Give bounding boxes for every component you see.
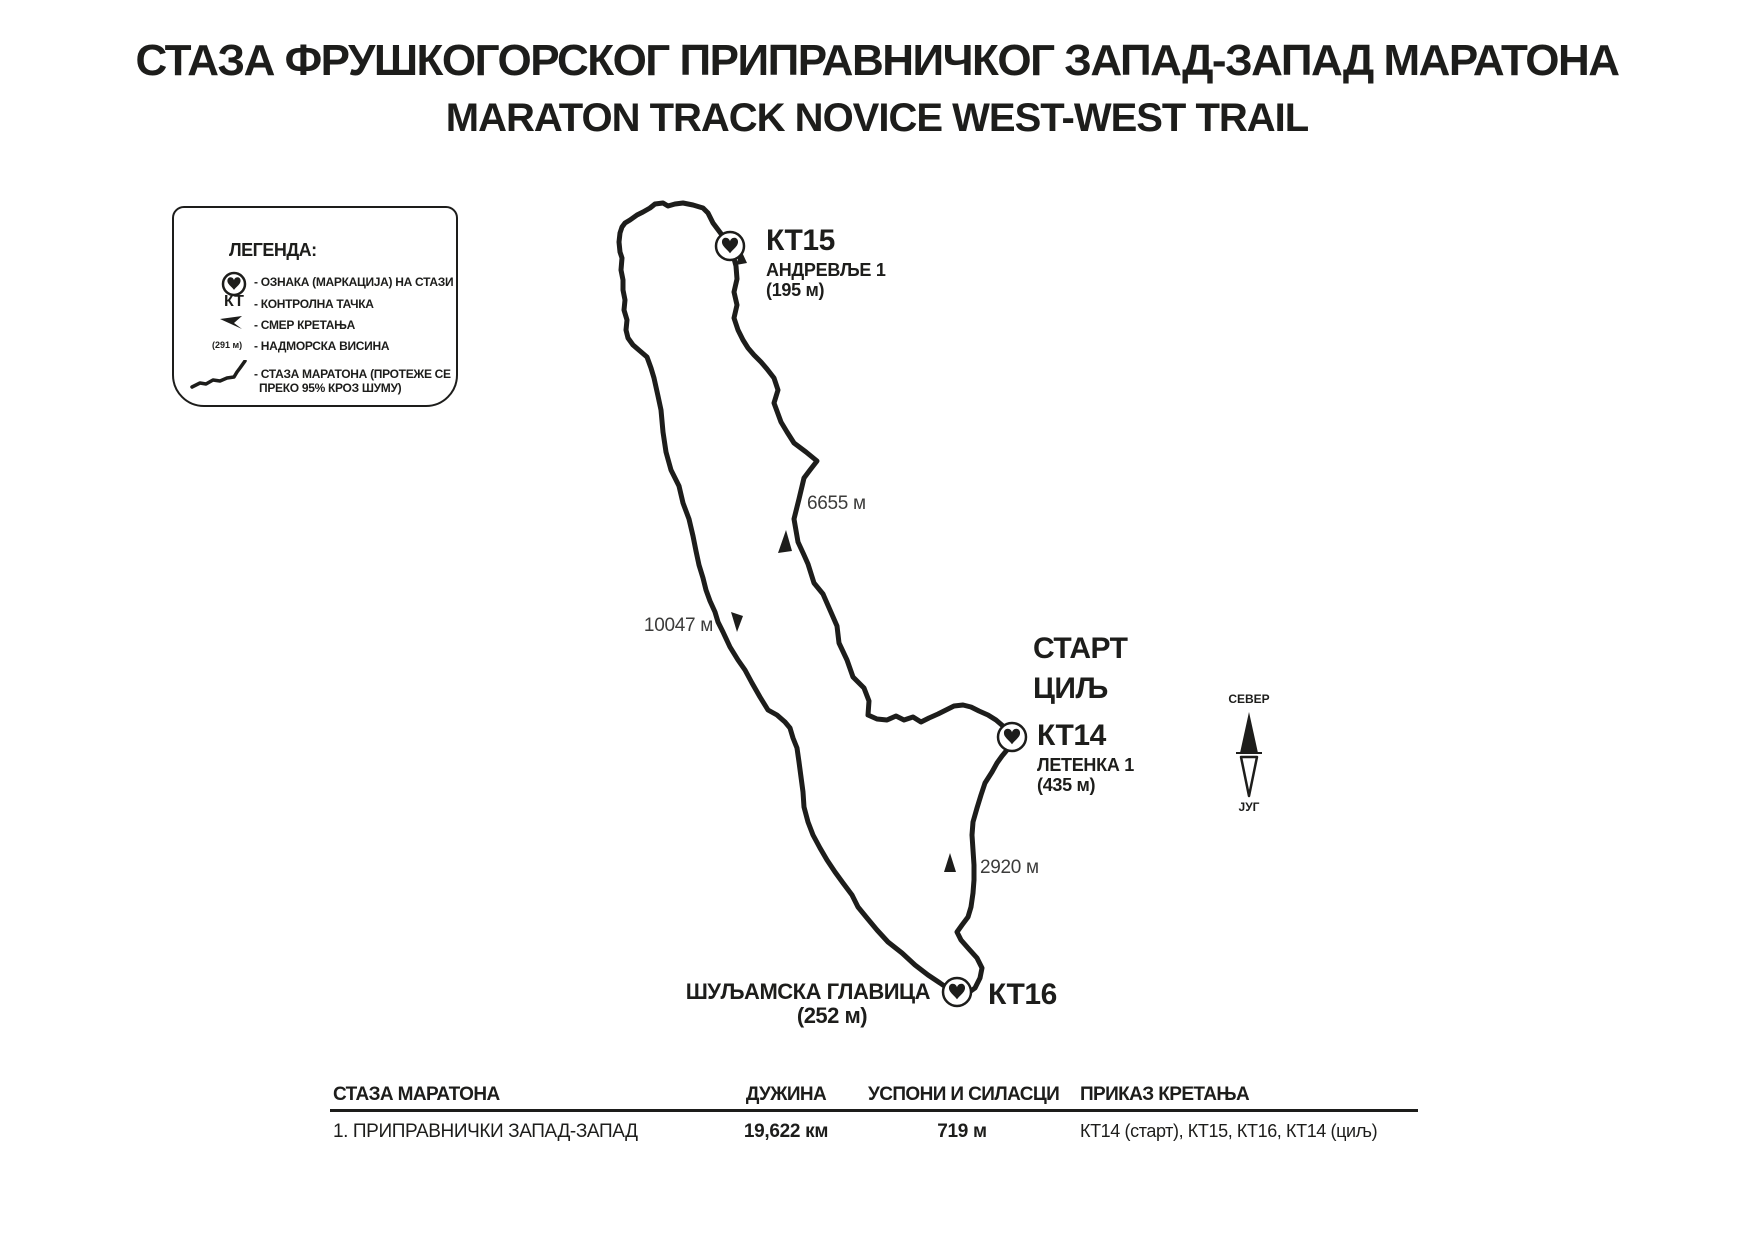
kt15-elevation-label: (195 м) bbox=[766, 280, 824, 301]
kt14-label: КТ14 bbox=[1037, 719, 1106, 753]
legend-heading: ЛЕГЕНДА: bbox=[229, 240, 317, 261]
table-row-ascents: 719 м bbox=[868, 1121, 1056, 1143]
page-title-cyrillic: СТАЗА ФРУШКОГОРСКОГ ПРИПРАВНИЧКОГ ЗАПАД-… bbox=[0, 36, 1754, 86]
checkpoint-marker-kt14 bbox=[998, 723, 1026, 751]
checkpoint-marker-kt16 bbox=[943, 978, 971, 1006]
legend-item-kt-symbol: КТ bbox=[224, 293, 244, 311]
kt16-place-label: ШУЉАМСКА ГЛАВИЦА bbox=[686, 979, 930, 1005]
trail-path-kt15-kt16 bbox=[619, 203, 957, 992]
checkpoint-marker-kt15 bbox=[716, 232, 744, 260]
table-header-movement: ПРИКАЗ КРЕТАЊА bbox=[1080, 1084, 1249, 1106]
table-row-track: 1. ПРИПРАВНИЧКИ ЗАПАД-ЗАПАД bbox=[333, 1121, 638, 1143]
kt15-place-label: АНДРЕВЉЕ 1 bbox=[766, 260, 886, 281]
trail-map-svg bbox=[0, 0, 1754, 1240]
compass-south-label: ЈУГ bbox=[1209, 800, 1289, 814]
kt16-label: КТ16 bbox=[988, 978, 1057, 1012]
trail-map-page: СТАЗА ФРУШКОГОРСКОГ ПРИПРАВНИЧКОГ ЗАПАД-… bbox=[0, 0, 1754, 1240]
direction-arrow-icon bbox=[220, 316, 244, 330]
trail-path-kt14-kt15 bbox=[730, 246, 1012, 737]
trail-line-icon bbox=[190, 360, 250, 390]
legend-item-elevation-label: - НАДМОРСКА ВИСИНА bbox=[254, 339, 389, 353]
kt15-label: КТ15 bbox=[766, 224, 835, 258]
table-header-divider bbox=[330, 1109, 1418, 1112]
distance-label-10047: 10047 м bbox=[644, 615, 713, 637]
legend-item-elevation-symbol: (291 м) bbox=[212, 340, 242, 350]
direction-arrow-icon bbox=[944, 853, 956, 872]
distance-label-2920: 2920 м bbox=[980, 857, 1039, 879]
page-title-latin: MARATON TRACK NOVICE WEST-WEST TRAIL bbox=[0, 96, 1754, 141]
compass-north-label: СЕВЕР bbox=[1209, 692, 1289, 706]
legend-item-direction-label: - СМЕР КРЕТАЊА bbox=[254, 318, 355, 332]
legend-item-trail-label-2: ПРЕКО 95% КРОЗ ШУМУ) bbox=[259, 381, 401, 395]
legend-item-trail-label-1: - СТАЗА МАРАТОНА (ПРОТЕЖЕ СЕ bbox=[254, 367, 451, 381]
table-row-movement: КТ14 (старт), КТ15, КТ16, КТ14 (циљ) bbox=[1080, 1121, 1377, 1142]
table-header-track: СТАЗА МАРАТОНА bbox=[333, 1084, 500, 1106]
legend-box: ЛЕГЕНДА: - ОЗНАКА (МАРКАЦИЈА) НА СТАЗИ К… bbox=[172, 206, 458, 407]
legend-item-kt-label: - КОНТРОЛНА ТАЧКА bbox=[254, 297, 374, 311]
compass-needle-icon bbox=[1236, 712, 1262, 796]
kt14-elevation-label: (435 м) bbox=[1037, 775, 1095, 796]
table-header-ascents: УСПОНИ И СИЛАСЦИ bbox=[868, 1084, 1056, 1106]
direction-arrow-icon bbox=[731, 612, 743, 632]
finish-label: ЦИЉ bbox=[1033, 672, 1108, 706]
kt16-elevation-label: (252 м) bbox=[770, 1003, 894, 1029]
kt14-place-label: ЛЕТЕНКА 1 bbox=[1037, 755, 1134, 776]
direction-arrow-icon bbox=[778, 530, 792, 553]
distance-label-6655: 6655 м bbox=[807, 493, 866, 515]
legend-item-marker-label: - ОЗНАКА (МАРКАЦИЈА) НА СТАЗИ bbox=[254, 275, 453, 289]
start-label: СТАРТ bbox=[1033, 632, 1127, 666]
table-header-length: ДУЖИНА bbox=[700, 1084, 872, 1106]
table-row-length: 19,622 км bbox=[700, 1121, 872, 1143]
